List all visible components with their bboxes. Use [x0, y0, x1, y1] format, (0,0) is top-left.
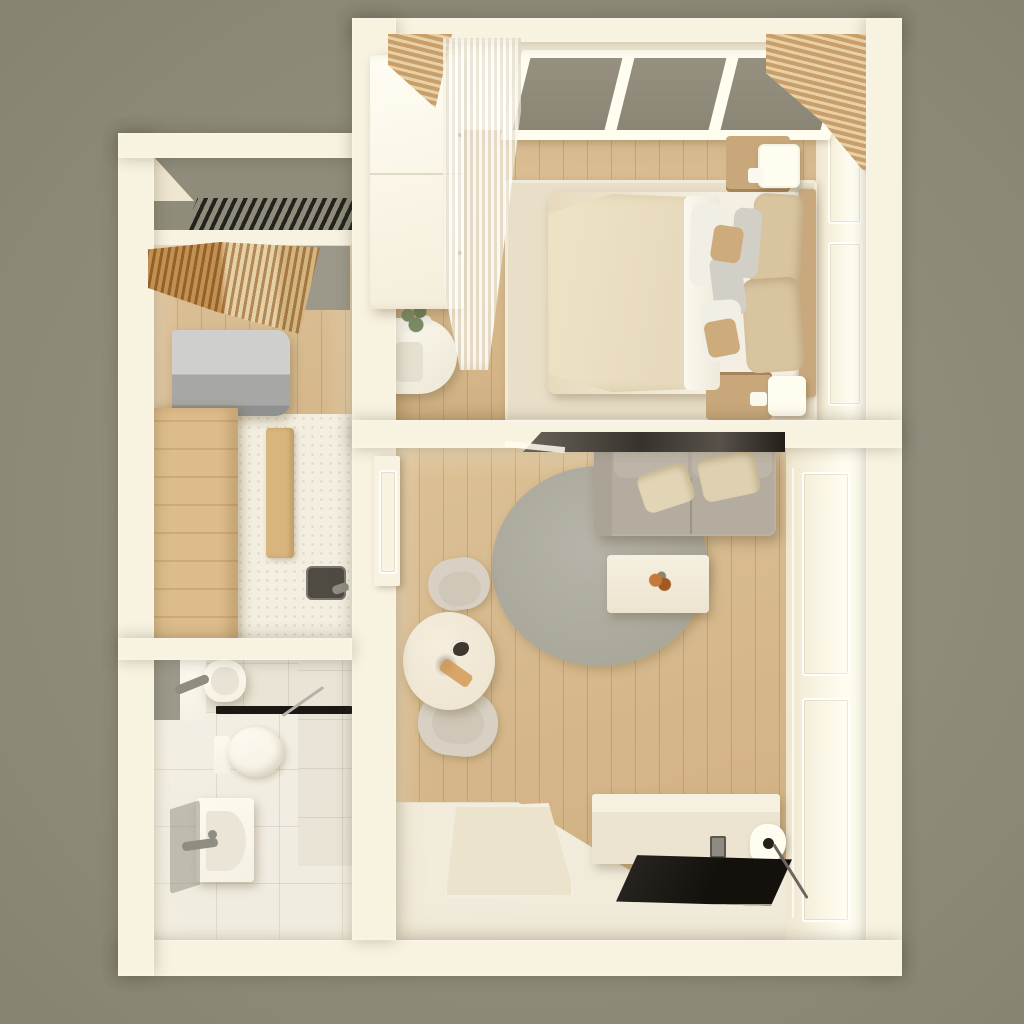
dining-table — [403, 612, 495, 710]
wall-divider-kitchen-bathroom — [118, 638, 352, 660]
sofa — [594, 444, 776, 536]
refrigerator — [172, 330, 290, 416]
toilet-bowl — [228, 727, 284, 777]
cabinet-tall-oak — [150, 408, 238, 644]
table-lamp-top — [758, 144, 800, 188]
wall-hall-top — [118, 133, 362, 158]
hall-shelf — [154, 230, 352, 245]
window-pane — [616, 58, 726, 130]
lamp-switch-bottom — [750, 392, 767, 406]
sofa-armrest-left — [594, 444, 612, 536]
table-lamp-bottom — [768, 376, 806, 416]
washbasin-bowl — [211, 667, 239, 695]
vent-grille — [184, 198, 352, 232]
dining-chair-seat — [437, 569, 483, 609]
tv-screen — [616, 854, 792, 908]
wall-right — [866, 18, 902, 976]
bathroom-wall-tiles-right — [298, 658, 352, 866]
floor-plan-canvas — [0, 0, 1024, 1024]
coffee-table-decor — [645, 569, 675, 597]
wall-bottom — [118, 940, 902, 976]
countertop — [236, 414, 352, 644]
living-panel-wall — [786, 448, 866, 940]
window-pane — [512, 58, 622, 130]
cabinet-base-oak — [266, 428, 294, 558]
cushion-tan-small — [709, 224, 744, 264]
wall-panel — [828, 242, 862, 406]
washbasin — [204, 660, 246, 702]
coffee-table — [607, 555, 709, 613]
console-socket — [710, 836, 726, 858]
wall-panel-groove — [792, 468, 794, 918]
wall-panel — [802, 698, 850, 922]
wall-panel — [802, 472, 850, 676]
open-door-leaf — [374, 456, 400, 586]
cushion-tan-small — [703, 317, 741, 358]
lamp-switch-top — [748, 168, 764, 183]
armchair-cushion — [395, 342, 423, 382]
door-panel-recess — [379, 470, 397, 574]
pillow-beige-large — [741, 276, 805, 374]
